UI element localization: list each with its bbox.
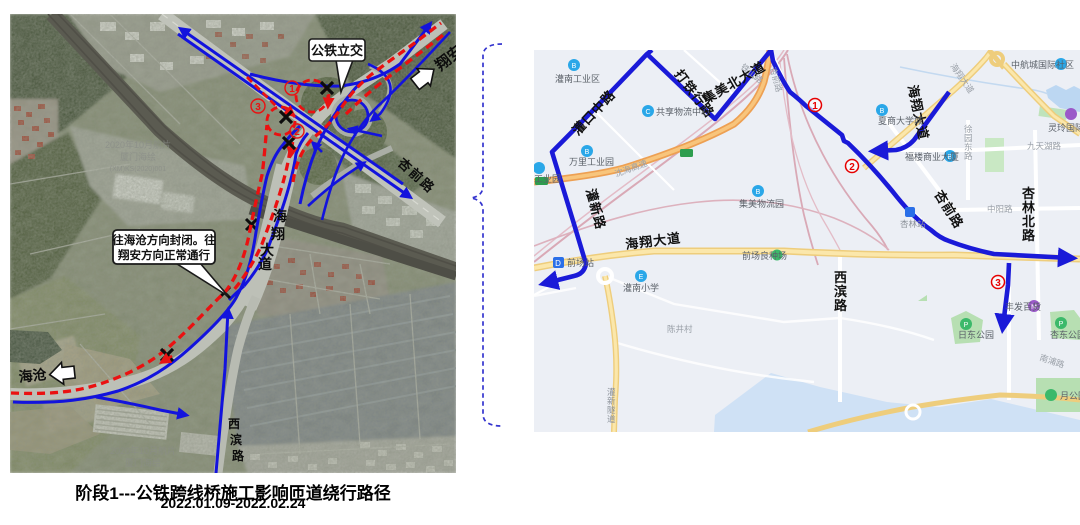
- svg-text:B: B: [585, 149, 590, 156]
- svg-text:道: 道: [258, 256, 272, 272]
- svg-text:(XM)KS(2020)001: (XM)KS(2020)001: [110, 166, 167, 173]
- svg-text:九天湖路: 九天湖路: [1027, 141, 1062, 151]
- svg-text:路: 路: [1022, 228, 1036, 243]
- svg-text:厦门海绘: 厦门海绘: [120, 151, 156, 162]
- svg-text:工业园: 工业园: [534, 174, 561, 184]
- svg-text:3: 3: [995, 278, 1001, 289]
- svg-text:西: 西: [834, 270, 847, 285]
- svg-text:2: 2: [849, 162, 855, 173]
- svg-text:杏东公园: 杏东公园: [1050, 329, 1080, 340]
- svg-text:前场良种场: 前场良种场: [742, 250, 787, 261]
- svg-text:C: C: [645, 109, 650, 116]
- svg-text:万里工业园: 万里工业园: [569, 157, 614, 167]
- svg-text:夏商大学城: 夏商大学城: [878, 115, 923, 126]
- svg-text:林: 林: [1022, 200, 1035, 215]
- svg-text:3: 3: [255, 102, 261, 113]
- svg-text:1: 1: [289, 84, 295, 95]
- svg-text:路: 路: [834, 298, 848, 313]
- svg-text:日东公园: 日东公园: [958, 329, 994, 340]
- svg-text:西: 西: [228, 417, 240, 431]
- svg-text:灵玲国际: 灵玲国际: [1048, 122, 1080, 133]
- svg-text:杏林站: 杏林站: [900, 219, 926, 229]
- svg-text:滨: 滨: [230, 432, 242, 447]
- svg-text:往海沧方向封闭。往: 往海沧方向封闭。往: [112, 233, 216, 247]
- svg-text:集美物流园: 集美物流园: [739, 198, 784, 209]
- svg-text:中航城国际社区: 中航城国际社区: [1011, 59, 1074, 70]
- svg-text:中阳路: 中阳路: [987, 204, 1013, 214]
- svg-text:B: B: [880, 108, 885, 115]
- svg-text:2020年10月航片: 2020年10月航片: [110, 445, 176, 456]
- svg-text:福楼商业大厦: 福楼商业大厦: [905, 151, 959, 162]
- svg-text:月公园: 月公园: [1060, 391, 1080, 401]
- svg-text:B: B: [756, 189, 761, 196]
- svg-text:2020年10月航片: 2020年10月航片: [105, 139, 171, 150]
- svg-text:丰发百货: 丰发百货: [1005, 301, 1041, 312]
- svg-text:E: E: [639, 274, 644, 281]
- svg-text:滨: 滨: [834, 284, 847, 299]
- svg-text:公铁立交: 公铁立交: [311, 43, 363, 58]
- svg-text:海: 海: [273, 208, 287, 224]
- svg-text:陈井村: 陈井村: [667, 324, 693, 334]
- svg-text:灌南工业区: 灌南工业区: [555, 73, 600, 84]
- svg-text:北: 北: [1022, 214, 1035, 229]
- svg-text:道: 道: [607, 414, 616, 424]
- svg-text:厦门海绘: 厦门海绘: [125, 457, 161, 468]
- svg-text:路: 路: [964, 151, 973, 161]
- svg-text:路: 路: [232, 448, 245, 463]
- svg-text:海沧: 海沧: [18, 366, 49, 385]
- svg-text:翔安方向正常通行: 翔安方向正常通行: [117, 248, 210, 262]
- svg-text:B: B: [572, 63, 577, 70]
- svg-text:1: 1: [812, 101, 818, 112]
- svg-text:翔: 翔: [270, 226, 285, 242]
- svg-text:P: P: [964, 322, 969, 329]
- svg-text:共享物流中心: 共享物流中心: [656, 106, 710, 117]
- svg-text:D: D: [555, 259, 561, 268]
- svg-text:P: P: [1059, 321, 1064, 328]
- svg-text:前场站: 前场站: [567, 257, 594, 268]
- svg-text:2: 2: [294, 127, 300, 138]
- svg-text:灌南小学: 灌南小学: [623, 282, 659, 293]
- svg-text:杏: 杏: [1022, 186, 1036, 201]
